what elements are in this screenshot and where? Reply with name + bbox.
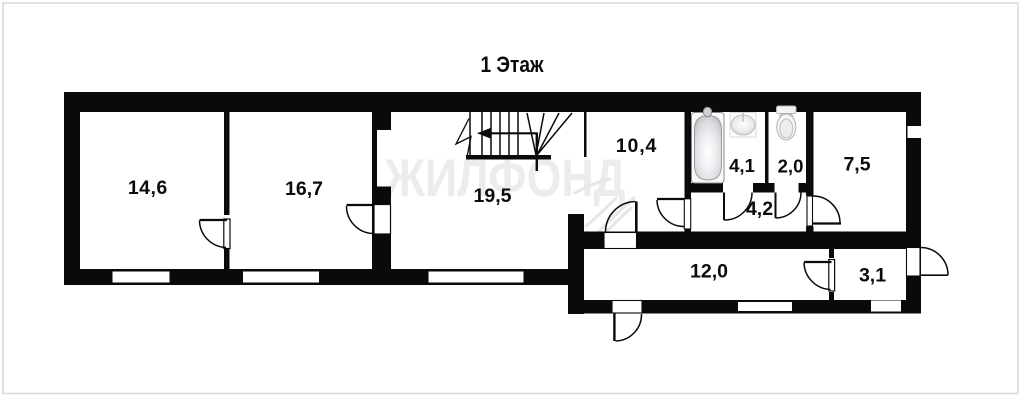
- svg-text:16,7: 16,7: [285, 178, 323, 200]
- svg-text:1 Этаж: 1 Этаж: [481, 52, 545, 77]
- svg-text:10,4: 10,4: [616, 135, 658, 157]
- svg-text:19,5: 19,5: [474, 185, 512, 207]
- svg-text:3,1: 3,1: [859, 265, 886, 287]
- svg-text:12,0: 12,0: [690, 261, 728, 283]
- svg-text:2,0: 2,0: [778, 156, 804, 177]
- svg-text:4,2: 4,2: [746, 198, 773, 220]
- svg-text:4,1: 4,1: [729, 155, 755, 176]
- svg-text:7,5: 7,5: [843, 154, 870, 176]
- svg-text:14,6: 14,6: [128, 177, 168, 199]
